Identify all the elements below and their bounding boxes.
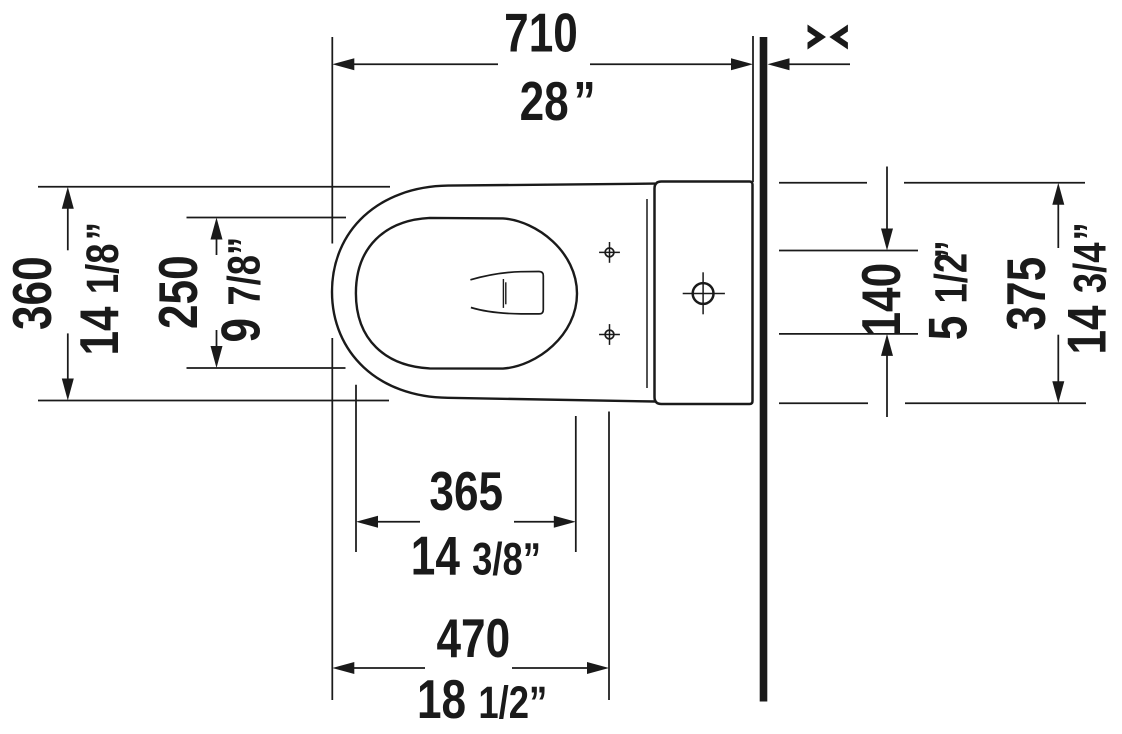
svg-text:9 7/8”: 9 7/8” [210, 237, 272, 343]
svg-text:375: 375 [996, 257, 1058, 331]
svg-text:140: 140 [851, 263, 913, 337]
svg-text:470: 470 [437, 608, 511, 670]
svg-text:5 1/2”: 5 1/2” [917, 240, 979, 340]
svg-text:18 1/2”: 18 1/2” [417, 669, 547, 731]
svg-text:365: 365 [429, 460, 503, 522]
svg-text:710: 710 [504, 2, 578, 64]
svg-text:14 3/8”: 14 3/8” [411, 525, 541, 587]
svg-text:28 ”: 28 ” [520, 70, 596, 132]
svg-text:250: 250 [148, 255, 210, 329]
svg-text:360: 360 [2, 256, 64, 330]
